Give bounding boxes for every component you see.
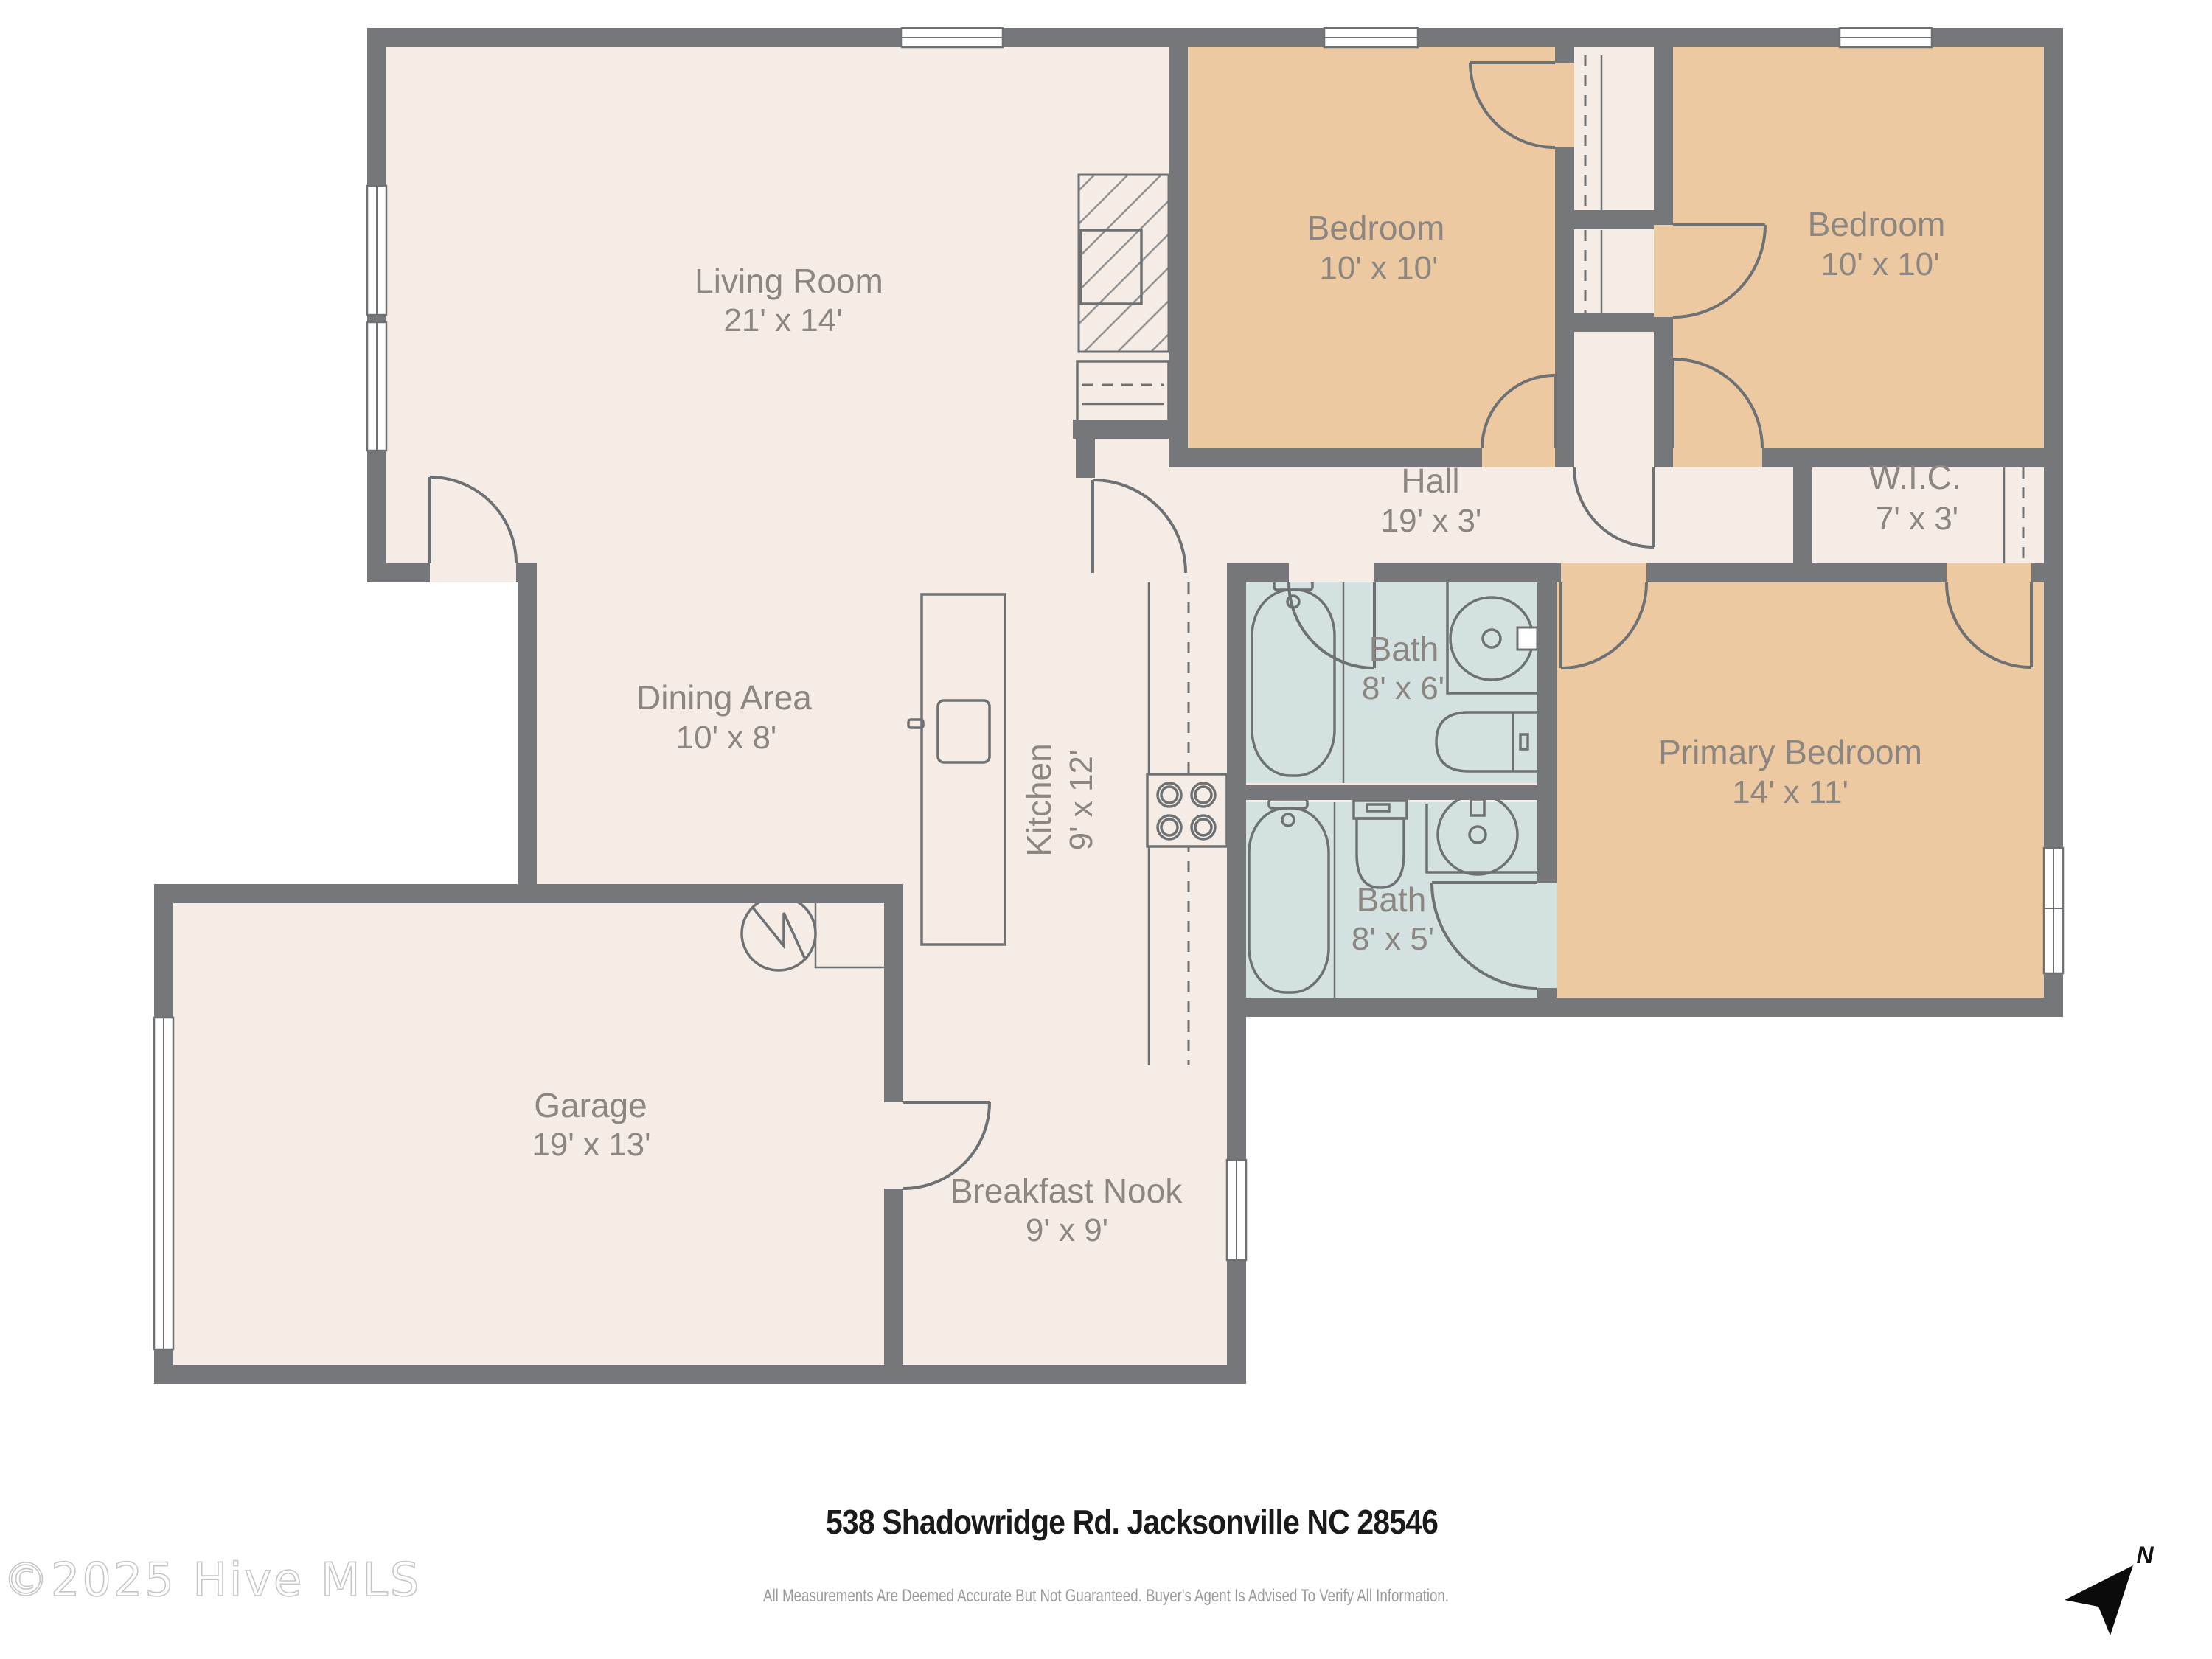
- window-glyph: [902, 28, 1003, 47]
- window-glyph: [1324, 28, 1418, 47]
- room-label-bedroom-a: Bedroom: [1307, 209, 1445, 247]
- room-dims-wic: 7' x 3': [1876, 501, 1958, 537]
- room-label-wic: W.I.C.: [1868, 458, 1961, 496]
- window-glyph: [1840, 28, 1932, 47]
- garage-door-glyph: [154, 1018, 173, 1349]
- room-dims-bath-a: 8' x 6': [1362, 670, 1444, 706]
- room-dims-living: 21' x 14': [723, 302, 842, 338]
- room-label-bath-a: Bath: [1369, 630, 1439, 668]
- room-label-primary: Primary Bedroom: [1658, 733, 1922, 771]
- room-dims-bath-b: 8' x 5': [1352, 921, 1434, 957]
- room-label-bedroom-b: Bedroom: [1808, 205, 1946, 243]
- room-label-bath-b: Bath: [1357, 880, 1427, 919]
- room-dims-nook: 9' x 9': [1026, 1212, 1108, 1248]
- room-label-living: Living Room: [695, 262, 883, 300]
- stove-icon: [1147, 774, 1227, 846]
- room-dims-primary: 14' x 11': [1732, 774, 1848, 810]
- footer: 538 Shadowridge Rd. Jacksonville NC 2854…: [3, 1503, 2154, 1635]
- room-label-nook: Breakfast Nook: [950, 1172, 1183, 1210]
- room-label-hall: Hall: [1401, 462, 1459, 500]
- disclaimer-text: All Measurements Are Deemed Accurate But…: [763, 1586, 1449, 1606]
- compass-north-label: N: [2136, 1542, 2154, 1568]
- room-dims-hall: 19' x 3': [1381, 503, 1482, 539]
- floor-plan-canvas: Living Room 21' x 14' Bedroom 10' x 10' …: [0, 0, 2212, 1659]
- room-dims-kitchen: 9' x 12': [1063, 750, 1099, 851]
- address-text: 538 Shadowridge Rd. Jacksonville NC 2854…: [826, 1503, 1438, 1541]
- room-label-kitchen: Kitchen: [1020, 743, 1058, 856]
- room-dims-garage: 19' x 13': [532, 1127, 650, 1163]
- window-glyph: [1227, 1160, 1246, 1260]
- room-dims-bedroom-b: 10' x 10': [1820, 246, 1939, 282]
- kitchen-island: [908, 594, 1005, 945]
- room-label-dining: Dining Area: [636, 678, 812, 717]
- room-dims-bedroom-a: 10' x 10': [1319, 250, 1438, 286]
- compass-north-icon: N: [2065, 1542, 2154, 1635]
- fireplace-icon: [1079, 175, 1169, 352]
- room-bedroom-a-floor: [1188, 47, 1555, 448]
- room-dims-dining: 10' x 8': [676, 720, 777, 756]
- room-label-garage: Garage: [534, 1086, 647, 1124]
- watermark-text: ©2025 Hive MLS: [3, 1553, 421, 1607]
- window-glyph: [367, 186, 386, 315]
- window-glyph: [2044, 848, 2063, 973]
- window-glyph: [367, 322, 386, 451]
